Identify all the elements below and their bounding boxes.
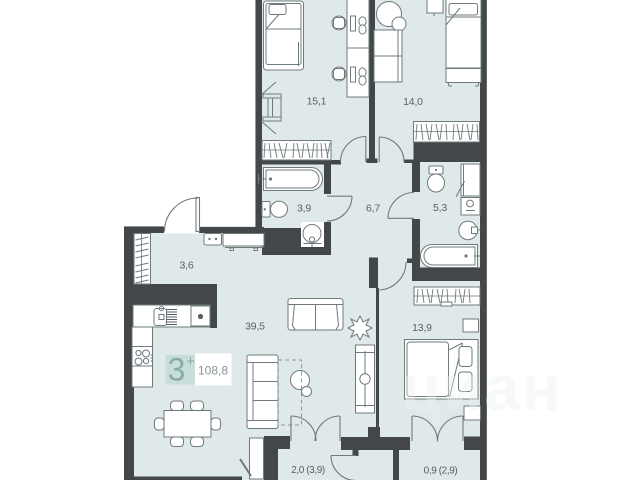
svg-text:2,0 (3,9): 2,0 (3,9) <box>291 465 325 476</box>
svg-text:6,7: 6,7 <box>366 203 380 215</box>
svg-text:5,3: 5,3 <box>433 202 447 214</box>
svg-text:15,1: 15,1 <box>307 96 327 108</box>
svg-text:13,9: 13,9 <box>412 322 432 334</box>
svg-text:3,9: 3,9 <box>297 203 311 215</box>
svg-text:108,8: 108,8 <box>198 364 228 378</box>
svg-text:39,5: 39,5 <box>245 321 265 333</box>
svg-text:3: 3 <box>168 352 186 388</box>
svg-text:0,9 (2,9): 0,9 (2,9) <box>424 466 458 477</box>
svg-text:циан: циан <box>402 352 563 424</box>
svg-text:14,0: 14,0 <box>403 96 423 108</box>
svg-text:3,6: 3,6 <box>180 260 194 272</box>
svg-text:+: + <box>186 353 195 370</box>
